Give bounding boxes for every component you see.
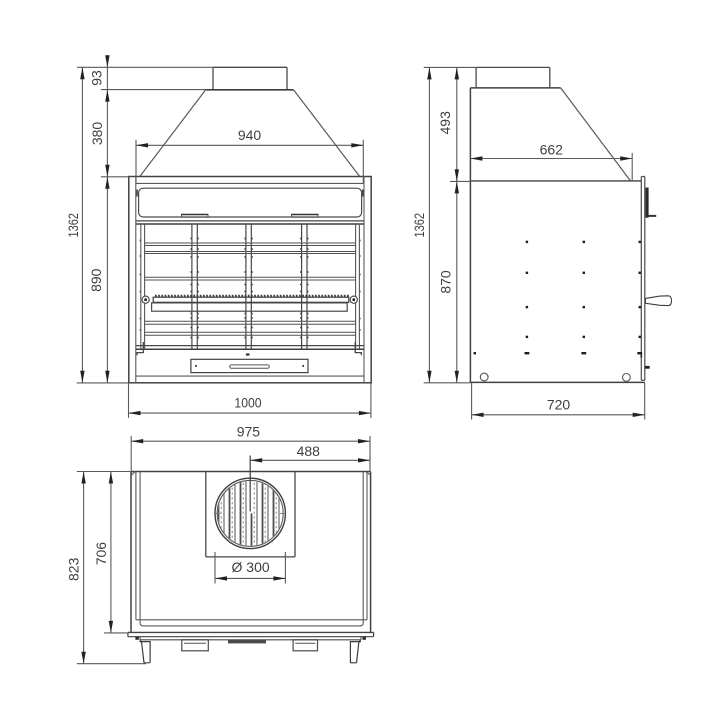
svg-text:93: 93 <box>89 70 105 86</box>
svg-text:870: 870 <box>438 270 454 294</box>
svg-text:488: 488 <box>297 443 321 459</box>
svg-text:975: 975 <box>237 424 261 440</box>
svg-text:1362: 1362 <box>411 213 427 238</box>
svg-text:940: 940 <box>238 127 262 143</box>
svg-text:493: 493 <box>437 111 453 135</box>
svg-text:720: 720 <box>547 396 571 412</box>
svg-text:1000: 1000 <box>234 395 261 411</box>
svg-text:890: 890 <box>88 268 104 292</box>
svg-text:662: 662 <box>540 142 564 158</box>
svg-text:380: 380 <box>89 122 105 146</box>
svg-text:Ø 300: Ø 300 <box>232 559 270 575</box>
svg-text:823: 823 <box>66 557 82 581</box>
svg-text:706: 706 <box>93 542 109 566</box>
svg-text:1362: 1362 <box>65 213 81 238</box>
